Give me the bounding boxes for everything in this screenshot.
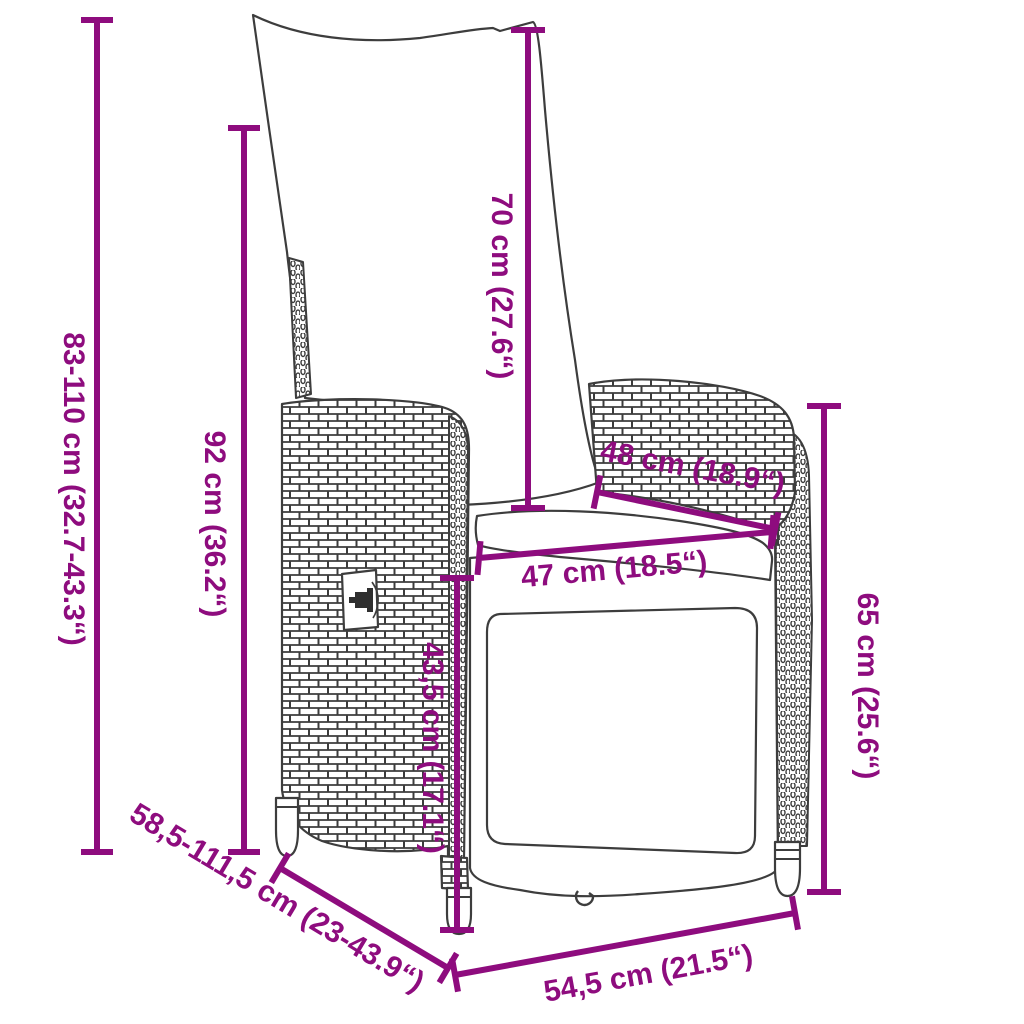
dimension-label-backrest-height: 92 cm (36.2“) xyxy=(198,431,231,618)
dimension-armrest-height: 65 cm (25.6“) xyxy=(807,406,884,892)
right-leg xyxy=(775,842,800,896)
recline-handle xyxy=(342,570,378,630)
dimension-backrest-height: 92 cm (36.2“) xyxy=(198,128,260,852)
dimension-diagram: 83-110 cm (32.7-43.3“) 92 cm (36.2“) 70 … xyxy=(0,0,1024,1024)
dimension-label-total-height: 83-110 cm (32.7-43.3“) xyxy=(57,332,90,646)
dimension-total-height: 83-110 cm (32.7-43.3“) xyxy=(57,20,113,852)
front-left-leg xyxy=(276,798,298,856)
dimension-base-width: 54,5 cm (21.5“) xyxy=(452,896,798,1009)
diagram-canvas: 83-110 cm (32.7-43.3“) 92 cm (36.2“) 70 … xyxy=(0,0,1024,1024)
dimension-label-back-cushion-height: 70 cm (27.6“) xyxy=(485,193,518,380)
dimension-label-base-width: 54,5 cm (21.5“) xyxy=(541,938,755,1008)
footrest-panel xyxy=(487,608,757,853)
dimension-label-seat-height: 43,5 cm (17.1“) xyxy=(416,642,449,854)
dimension-label-armrest-height: 65 cm (25.6“) xyxy=(851,593,884,780)
